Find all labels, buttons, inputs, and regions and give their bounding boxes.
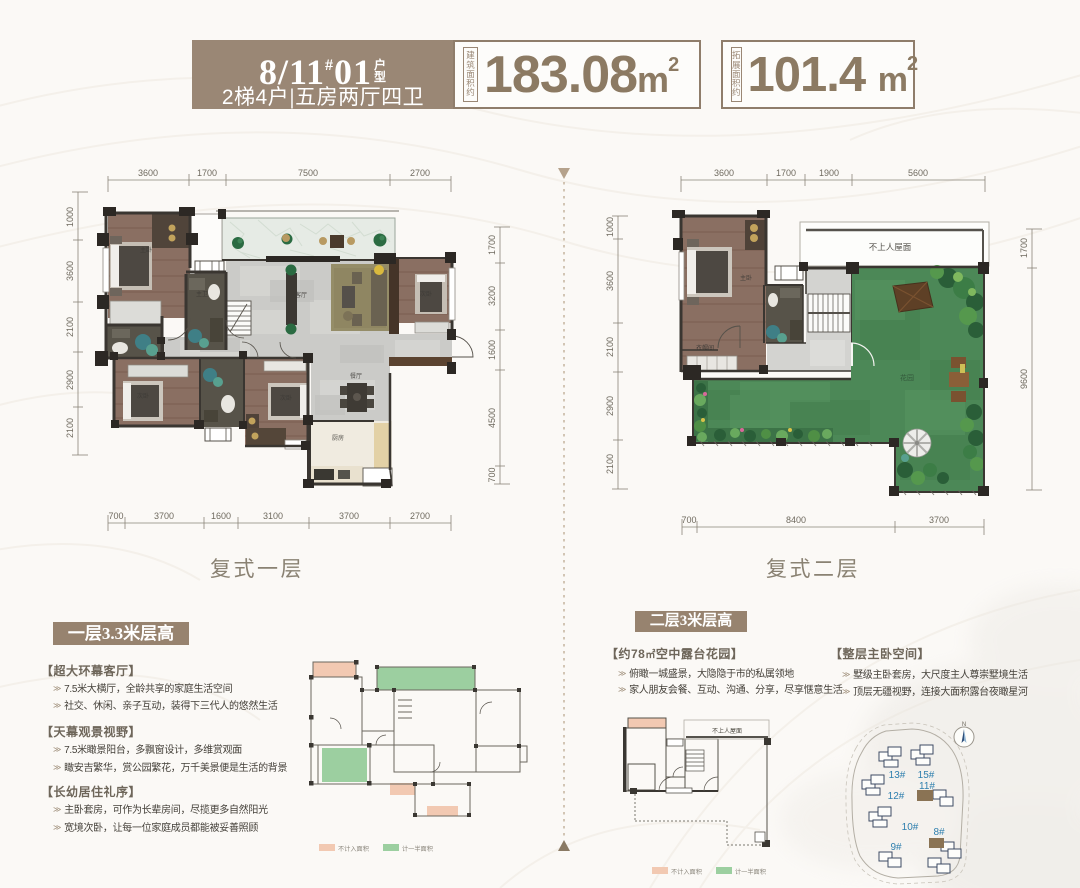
svg-text:3600: 3600 bbox=[714, 168, 734, 178]
svg-text:15#: 15# bbox=[918, 770, 935, 781]
svg-text:7500: 7500 bbox=[298, 168, 318, 178]
svg-text:1700: 1700 bbox=[1019, 238, 1029, 258]
svg-text:700: 700 bbox=[681, 515, 696, 525]
svg-text:700: 700 bbox=[108, 511, 123, 521]
svg-text:2100: 2100 bbox=[605, 337, 615, 357]
svg-text:不计入面积: 不计入面积 bbox=[671, 868, 702, 876]
svg-text:3200: 3200 bbox=[487, 286, 497, 306]
svg-text:主卫: 主卫 bbox=[196, 290, 208, 298]
svg-text:12#: 12# bbox=[888, 791, 905, 802]
svg-text:3700: 3700 bbox=[339, 511, 359, 521]
svg-text:厨房: 厨房 bbox=[332, 434, 344, 442]
svg-text:主卧: 主卧 bbox=[140, 246, 152, 254]
svg-text:2100: 2100 bbox=[65, 317, 75, 337]
svg-text:3700: 3700 bbox=[929, 515, 949, 525]
svg-text:3600: 3600 bbox=[65, 261, 75, 281]
svg-text:2900: 2900 bbox=[65, 370, 75, 390]
svg-text:2700: 2700 bbox=[410, 168, 430, 178]
svg-text:次卧: 次卧 bbox=[280, 394, 292, 402]
svg-text:2100: 2100 bbox=[65, 418, 75, 438]
svg-text:1700: 1700 bbox=[487, 235, 497, 255]
svg-text:不计入面积: 不计入面积 bbox=[338, 845, 369, 853]
svg-text:1000: 1000 bbox=[65, 207, 75, 227]
svg-text:3600: 3600 bbox=[138, 168, 158, 178]
svg-text:复式二层: 复式二层 bbox=[766, 558, 860, 581]
svg-text:1700: 1700 bbox=[776, 168, 796, 178]
svg-text:客厅: 客厅 bbox=[295, 291, 307, 299]
svg-text:花园: 花园 bbox=[900, 373, 914, 382]
svg-text:3100: 3100 bbox=[263, 511, 283, 521]
svg-text:餐厅: 餐厅 bbox=[350, 372, 362, 380]
svg-text:不上人屋面: 不上人屋面 bbox=[712, 727, 742, 735]
svg-text:11#: 11# bbox=[919, 781, 935, 792]
svg-text:3600: 3600 bbox=[605, 271, 615, 291]
svg-text:700: 700 bbox=[487, 467, 497, 482]
svg-text:2900: 2900 bbox=[605, 396, 615, 416]
svg-text:1000: 1000 bbox=[605, 217, 615, 237]
svg-text:衣帽间: 衣帽间 bbox=[696, 344, 714, 352]
svg-text:1700: 1700 bbox=[197, 168, 217, 178]
svg-text:4500: 4500 bbox=[487, 408, 497, 428]
svg-text:计一半面积: 计一半面积 bbox=[402, 845, 433, 853]
svg-text:1900: 1900 bbox=[819, 168, 839, 178]
svg-text:次卧: 次卧 bbox=[137, 392, 149, 400]
svg-text:不上人屋面: 不上人屋面 bbox=[869, 242, 912, 252]
svg-text:计一半面积: 计一半面积 bbox=[735, 868, 766, 876]
svg-text:9600: 9600 bbox=[1019, 369, 1029, 389]
svg-text:5600: 5600 bbox=[908, 168, 928, 178]
svg-text:2100: 2100 bbox=[605, 454, 615, 474]
svg-text:1600: 1600 bbox=[487, 340, 497, 360]
svg-text:3700: 3700 bbox=[154, 511, 174, 521]
svg-text:9#: 9# bbox=[890, 842, 902, 853]
svg-text:复式一层: 复式一层 bbox=[210, 558, 304, 581]
svg-text:8400: 8400 bbox=[786, 515, 806, 525]
svg-text:2700: 2700 bbox=[410, 511, 430, 521]
svg-text:8#: 8# bbox=[933, 827, 945, 838]
svg-text:N: N bbox=[962, 722, 966, 728]
svg-text:13#: 13# bbox=[889, 770, 906, 781]
svg-text:1600: 1600 bbox=[211, 511, 231, 521]
svg-text:次卧: 次卧 bbox=[420, 290, 432, 298]
svg-text:10#: 10# bbox=[902, 822, 919, 833]
svg-text:主卧: 主卧 bbox=[740, 274, 752, 282]
